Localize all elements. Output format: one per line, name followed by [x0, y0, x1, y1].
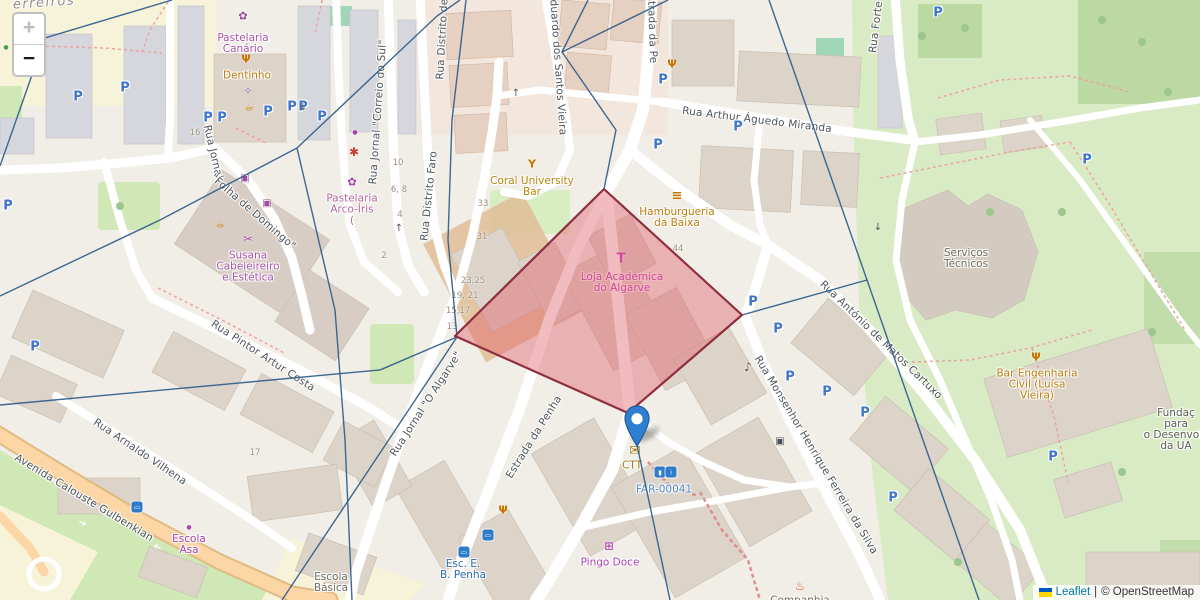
parking-icon: P	[933, 6, 943, 21]
zoom-in-button[interactable]: +	[14, 14, 44, 45]
parking-icon: P	[3, 199, 13, 214]
leaflet-link[interactable]: Leaflet	[1056, 586, 1091, 598]
bus-stop-icon: ▭	[483, 530, 494, 541]
poi-label-pingo-doce: Pingo Doce	[581, 558, 640, 569]
poi-label-companhia: Companhia	[770, 596, 830, 600]
street-label: Rua Jornal "O Algarve"	[388, 350, 465, 459]
parking-icon: P	[653, 138, 663, 153]
street-label: Estrada da Pe	[645, 0, 660, 64]
street-label: Avenida Calouste Gulbenkian	[13, 452, 156, 544]
poi-label-hamburgueria-da-baixa: Hamburgueriada Baixa	[639, 207, 714, 229]
restaurant-icon: Ψ	[241, 54, 250, 65]
cart-icon: ⊞	[604, 541, 613, 552]
parking-icon: P	[263, 105, 273, 120]
poi-label-servicos-tecnicos: ServiçosTécnicos	[944, 248, 988, 270]
atm-icon: ▣	[775, 437, 784, 447]
ukraine-flag-icon	[1039, 588, 1052, 597]
map-marker-icon[interactable]	[624, 405, 650, 447]
pet-paw-icon: ✱	[349, 146, 359, 158]
cupcake-icon: ✿	[347, 177, 356, 188]
parking-icon: P	[822, 385, 832, 400]
street-label: Rua Eduardo dos Santos Vieira	[545, 0, 569, 136]
cupcake-icon: ✿	[238, 11, 247, 22]
street-label: Rua Pintor Artur Costa	[209, 318, 317, 394]
bus-stop-icon: ▭	[132, 502, 143, 513]
parking-icon: P	[1048, 450, 1058, 465]
parking-icon: P	[298, 100, 308, 115]
poi-label-bar-engenharia-civil: Bar EngenhariaCivil (LuísaVieira)	[996, 369, 1077, 402]
info-icon: i	[666, 467, 677, 478]
house-number: 4	[397, 210, 402, 220]
hairdresser-scissors-icon: ✂	[243, 233, 253, 245]
cocktail-icon: Y	[528, 159, 536, 170]
oneway-arrow-icon: ↑	[395, 224, 403, 234]
dentist-icon: ✧	[243, 86, 252, 97]
restaurant-icon: Ψ	[667, 59, 676, 70]
house-number: 15,17	[446, 306, 470, 316]
poi-label-pastelaria-canario: PastelariaCanário	[217, 33, 268, 55]
poi-label-escola-basica: EscolaBásica	[314, 572, 348, 594]
oneway-arrow-icon: ➔	[76, 518, 88, 531]
parking-icon: P	[203, 111, 213, 126]
house-number: 10	[393, 158, 404, 168]
green-poi-icon: ●	[3, 45, 8, 51]
shop-icon: ▣	[262, 199, 271, 209]
street-label: Rua Distrito Faro	[418, 150, 439, 241]
bus-stop-icon: ▭	[459, 547, 470, 558]
map-canvas[interactable]: erreirosRua Jornal"Folha de Domingo"Rua …	[0, 0, 1200, 600]
poi-label-far-00041: FAR-00041	[636, 485, 692, 496]
house-number: 19, 21	[451, 291, 478, 301]
house-number: 17	[250, 448, 261, 458]
street-label: Rua Arnaldo Vilhena	[91, 416, 189, 487]
burger-icon: ≡	[672, 190, 683, 203]
parking-icon: P	[748, 295, 758, 310]
poi-label-dentinho: Dentinho	[223, 71, 271, 82]
poi-label-fundacao-ua: Fundaçparao Desenvolvda UA	[1144, 408, 1200, 452]
poi-label-escola-asa: EscolaAsa	[172, 534, 206, 556]
cafe-icon: ☕	[215, 219, 225, 230]
attribution-separator: |	[1094, 586, 1097, 598]
house-number: 33	[478, 199, 489, 209]
parking-icon: P	[1082, 153, 1092, 168]
laundry-icon: ▣	[240, 174, 249, 184]
poi-label-coral-university-bar: Coral UniversityBar	[490, 176, 574, 198]
restaurant-icon: Ψ	[1031, 352, 1040, 363]
street-label: Rua Arthur Águedo Miranda	[681, 105, 832, 135]
attribution-bar: Leaflet | © OpenStreetMap	[1033, 585, 1200, 600]
selection-polygon[interactable]	[455, 189, 742, 413]
toilets-icon: ▮	[655, 467, 666, 478]
house-number: 16	[190, 128, 201, 138]
street-label: Rua Distrito de Faro	[434, 0, 452, 80]
street-label: Rua Forte	[867, 0, 885, 53]
poi-label-pastelaria-arco-iris: PastelariaArco-Íris(	[326, 194, 377, 227]
parking-icon: P	[73, 90, 83, 105]
fire-station-icon: ♨	[795, 580, 806, 592]
locality-label: erreiros	[12, 0, 75, 13]
school-dot-icon: ●	[186, 525, 191, 531]
parking-icon: P	[773, 322, 783, 337]
street-label: Rua António de Matos Cartuxo	[817, 278, 944, 401]
street-label: "Folha de Domingo"	[208, 172, 298, 252]
poi-label-esc-eb-penha: Esc. E.B. Penha	[440, 559, 486, 581]
cafe-icon: ☕	[244, 102, 254, 113]
music-shop-icon: ♪	[744, 361, 752, 373]
oneway-arrow-icon: ↑	[512, 89, 520, 99]
parking-icon: P	[888, 491, 898, 506]
zoom-control: + −	[12, 12, 46, 77]
openstreetmap-link[interactable]: © OpenStreetMap	[1101, 586, 1194, 598]
parking-icon: P	[785, 370, 795, 385]
poi-label-susana-cabeleireiro: SusanaCabeleireiroe Estética	[216, 251, 279, 284]
zoom-out-button[interactable]: −	[14, 45, 44, 75]
parking-icon: P	[658, 73, 668, 88]
map-overlays	[0, 0, 1200, 600]
oneway-arrow-icon: ↓	[299, 103, 307, 113]
parking-icon: P	[287, 100, 297, 115]
oneway-arrow-icon: ➔	[152, 540, 164, 553]
parking-icon: P	[30, 340, 40, 355]
parking-icon: P	[317, 110, 327, 125]
house-number: 13	[447, 322, 458, 332]
parking-icon: P	[860, 406, 870, 421]
boundary-lines	[0, 0, 979, 600]
street-label: Rua Jornal "Correio do Sul"	[367, 39, 389, 185]
oneway-arrow-icon: ↓	[874, 223, 882, 233]
house-number: 6, 8	[391, 185, 407, 195]
shop-dot-icon: ●	[352, 130, 357, 136]
street-label: Estrada da Penha	[504, 393, 565, 480]
house-number: 2	[381, 251, 386, 261]
street-label: Rua Jornal	[201, 124, 225, 180]
house-number: 31	[477, 232, 488, 242]
street-label: Rua Monsenhor Henrique Ferreira da Silva	[752, 354, 880, 557]
parking-icon: P	[733, 120, 743, 135]
parking-icon: P	[217, 111, 227, 126]
poi-label-ctt: CTT	[622, 461, 642, 472]
restaurant-icon: Ψ	[498, 505, 507, 516]
parking-icon: P	[120, 81, 130, 96]
house-number: 23,25	[461, 276, 485, 286]
